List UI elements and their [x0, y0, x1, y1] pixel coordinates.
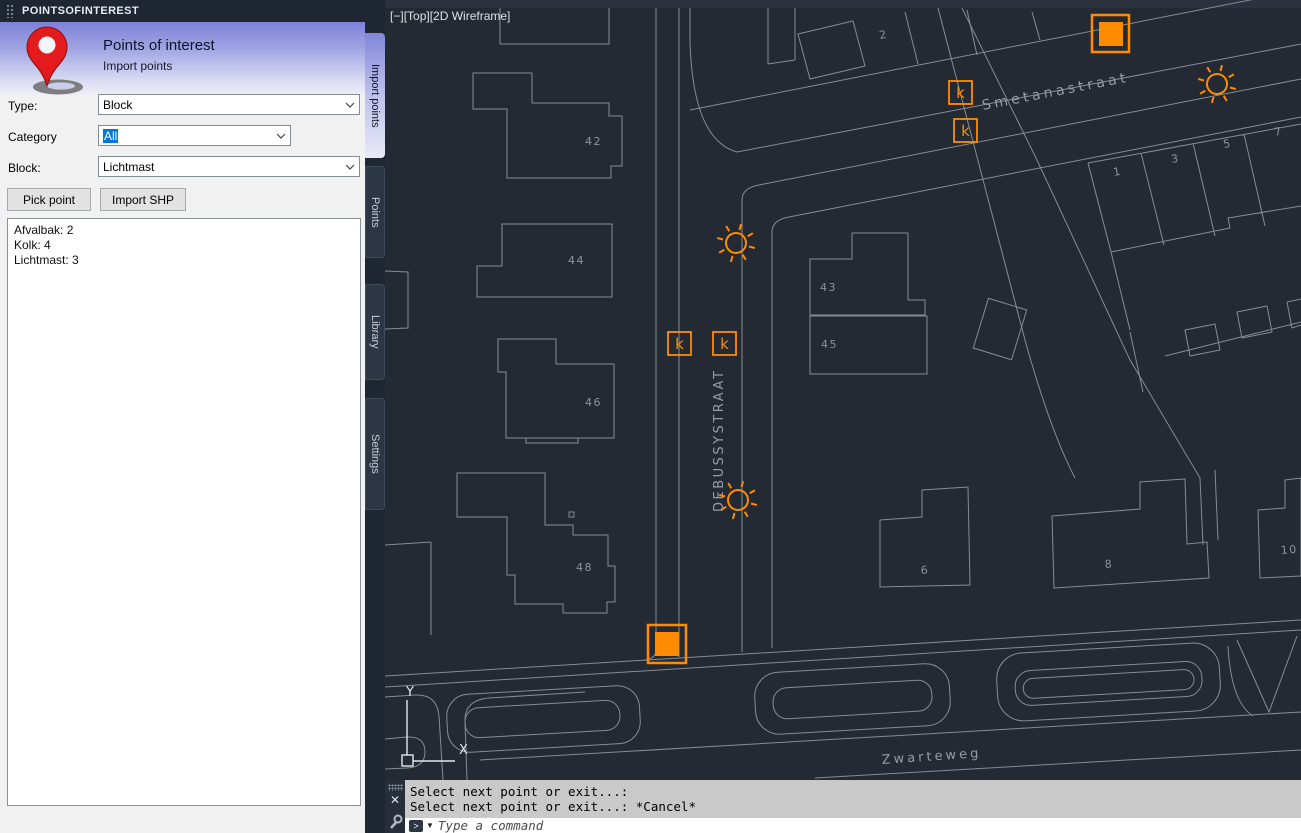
location-pin-icon: [16, 24, 88, 96]
tab-points[interactable]: Points: [365, 166, 385, 258]
ucs-y-label: Y: [405, 685, 414, 700]
type-label: Type:: [8, 99, 37, 113]
command-history[interactable]: Select next point or exit...: Select nex…: [405, 780, 1301, 818]
drawing-viewport[interactable]: [−][Top][2D Wireframe]: [385, 0, 1301, 780]
block-value: Lichtmast: [103, 160, 154, 174]
building-number: 43: [820, 281, 837, 294]
command-side-strip: ✕: [385, 780, 405, 833]
type-dropdown[interactable]: Block: [98, 94, 360, 115]
block-dropdown[interactable]: Lichtmast: [98, 156, 360, 177]
chevron-down-icon[interactable]: ▼: [426, 821, 434, 830]
street-label-debussystraat: DEBUSSYSTRAAT: [712, 369, 727, 512]
wrench-icon[interactable]: [388, 814, 403, 830]
page-subtitle: Import points: [103, 59, 172, 73]
pick-point-button[interactable]: Pick point: [7, 188, 91, 211]
command-history-line: Select next point or exit...:: [410, 784, 1301, 799]
viewport-controls: [−][Top][2D Wireframe]: [390, 9, 510, 23]
category-value: All: [103, 129, 118, 143]
panel-title: POINTSOFINTEREST: [22, 5, 139, 17]
svg-text:k: k: [720, 335, 729, 353]
lichtmast-marker[interactable]: [1193, 60, 1241, 108]
panel-titlebar[interactable]: POINTSOFINTEREST: [0, 0, 365, 22]
afvalbak-marker[interactable]: [1092, 15, 1129, 52]
list-item: Afvalbak: 2: [14, 223, 354, 238]
building-number: 6: [920, 563, 929, 577]
viewport-visualstyle-control[interactable]: [2D Wireframe]: [430, 9, 511, 23]
building-outline: [973, 298, 1026, 359]
svg-text:k: k: [961, 122, 970, 140]
building-number: 8: [1104, 557, 1113, 571]
type-value: Block: [103, 98, 132, 112]
block-label: Block:: [8, 161, 41, 175]
tab-library[interactable]: Library: [365, 284, 385, 380]
points-of-interest-panel: POINTSOFINTEREST Points of interest Impo…: [0, 0, 365, 833]
building-number: 46: [585, 396, 602, 409]
curb-curves: [385, 692, 585, 780]
category-dropdown[interactable]: All: [98, 125, 291, 146]
drag-grip-icon[interactable]: [6, 4, 15, 18]
command-input-row: > ▼: [405, 818, 1301, 833]
building-outlines: [385, 8, 1301, 635]
command-window: ✕ Select next point or exit...: Select n…: [385, 780, 1301, 833]
building-number: 45: [821, 338, 838, 351]
parking-islands: [445, 636, 1297, 753]
building-number: 7: [1273, 125, 1284, 139]
svg-text:k: k: [675, 335, 684, 353]
map-canvas[interactable]: Smetanastraat DEBUSSYSTRAAT Zwarteweg 42…: [385, 0, 1301, 780]
building-number: 3: [1170, 152, 1181, 166]
building-number: 5: [1222, 137, 1233, 151]
ucs-x-label: X: [459, 743, 468, 758]
building-number: 48: [576, 561, 593, 574]
import-summary-list[interactable]: Afvalbak: 2 Kolk: 4 Lichtmast: 3: [7, 218, 361, 806]
chevron-down-icon: [345, 164, 355, 170]
svg-text:k: k: [956, 84, 965, 102]
close-icon[interactable]: ✕: [385, 793, 405, 808]
tab-import-points[interactable]: Import points: [365, 33, 385, 158]
street-lines: [385, 0, 1301, 778]
tab-settings[interactable]: Settings: [365, 398, 385, 510]
panel-header: Points of interest Import points: [0, 22, 365, 96]
building-number: 44: [568, 254, 585, 267]
afvalbak-marker[interactable]: [648, 625, 686, 663]
command-prompt-icon[interactable]: >: [409, 820, 423, 832]
building-number: 42: [585, 135, 602, 148]
chevron-down-icon: [276, 133, 286, 139]
kolk-marker[interactable]: k: [713, 332, 736, 355]
list-item: Lichtmast: 3: [14, 253, 354, 268]
side-tabstrip: Import points Points Library Settings: [365, 0, 385, 833]
viewport-minimize-control[interactable]: [−]: [390, 9, 404, 23]
category-label: Category: [8, 130, 57, 144]
building-number: 2: [878, 28, 889, 42]
building-numbers: 42 44 46 48 43 45 2 1 3 5 7 6 8 10: [568, 28, 1298, 577]
kolk-marker[interactable]: k: [954, 119, 977, 142]
drag-grip-icon[interactable]: [388, 784, 403, 791]
command-history-line: Select next point or exit...: *Cancel*: [410, 799, 1301, 814]
building-number: 1: [1112, 165, 1123, 179]
kolk-marker[interactable]: k: [668, 332, 691, 355]
building-number: 10: [1280, 543, 1298, 557]
chevron-down-icon: [345, 102, 355, 108]
command-input[interactable]: [438, 818, 1301, 833]
page-title: Points of interest: [103, 37, 215, 54]
lichtmast-marker[interactable]: [712, 219, 760, 267]
kolk-marker[interactable]: k: [949, 81, 972, 104]
import-shp-button[interactable]: Import SHP: [100, 188, 186, 211]
list-item: Kolk: 4: [14, 238, 354, 253]
street-label-zwarteweg: Zwarteweg: [881, 746, 982, 768]
viewport-view-control[interactable]: [Top]: [404, 9, 430, 23]
